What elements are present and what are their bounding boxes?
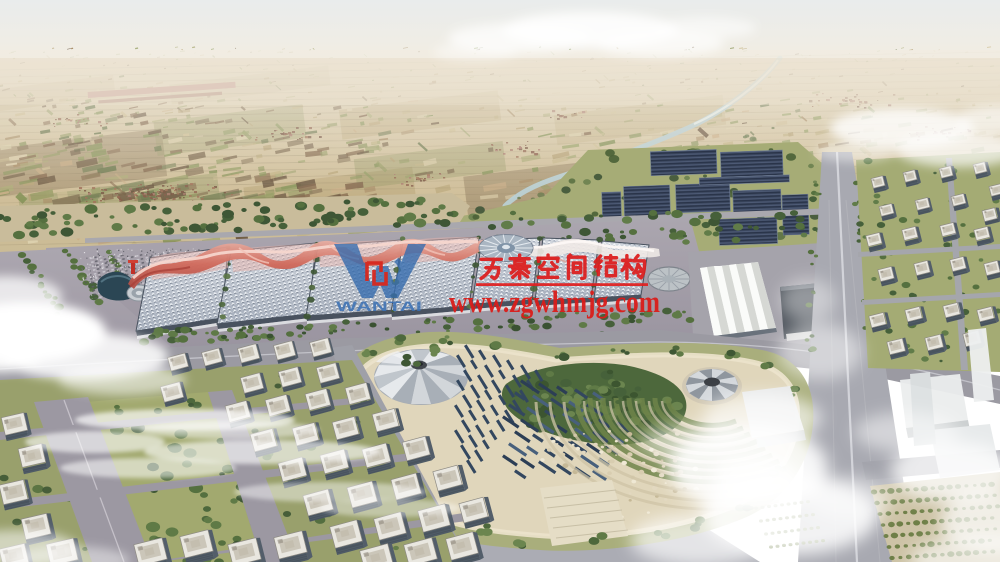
svg-text:www.zgwhmjg.com: www.zgwhmjg.com [449, 284, 660, 319]
svg-text:WANTAI: WANTAI [336, 298, 422, 314]
